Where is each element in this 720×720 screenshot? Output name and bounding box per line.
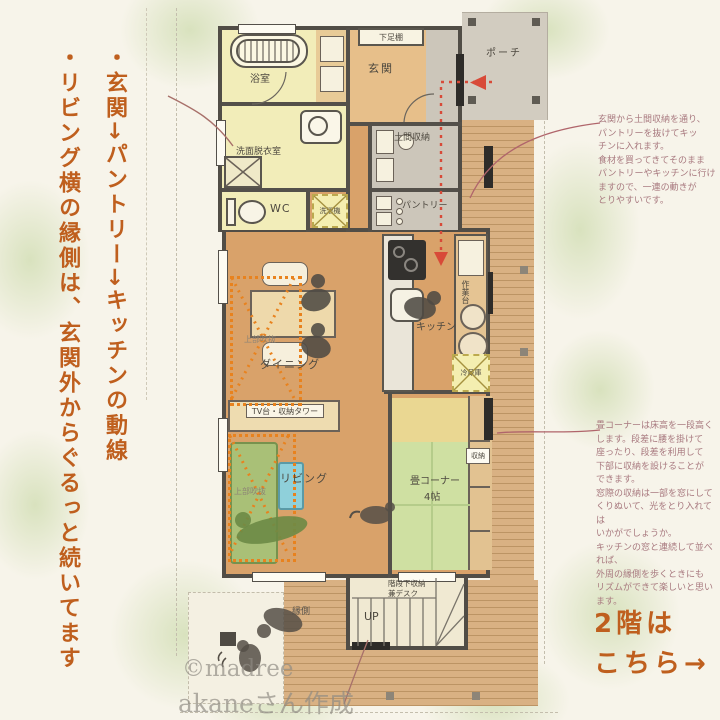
window (238, 24, 296, 34)
author-credit: akaneさん作成 (178, 684, 354, 720)
porch-post (468, 96, 476, 104)
void-living-label: 上部吹抜 (234, 486, 266, 497)
closet (224, 156, 262, 188)
toilet-bowl (238, 200, 266, 224)
wall (306, 192, 310, 232)
storage-label: 収納 (471, 451, 485, 461)
tatami-size-label: 4帖 (424, 488, 440, 503)
stairs-desk-label: 階段下収納 兼デスク (388, 579, 426, 599)
wall (348, 122, 462, 126)
pantry-shelf (376, 196, 392, 210)
void-above-living (228, 434, 296, 562)
washing-machine: 洗濯機 (312, 194, 348, 228)
note-engawa: ・リビング横の縁側は、玄関外からぐるっと続いてます (51, 46, 83, 706)
boundary-dashed-line (146, 8, 147, 400)
storage-divider (468, 530, 490, 532)
void-dining-label: 上部吹抜 (244, 334, 276, 345)
washbasin-bowl (308, 116, 328, 136)
wall (368, 126, 372, 232)
annotation-entrance-flow: 玄関から土間収納を通り、 パントリーを抜けてキッ チンに入れます。 食材を買って… (598, 114, 716, 209)
shoe-shelf: 下足棚 (358, 28, 424, 46)
porch-post (468, 18, 476, 26)
annotation-tatami: 畳コーナーは床高を一段高く します。段差に腰を掛けて 座ったり、段差を利用して … (596, 420, 720, 609)
toilet-tank (226, 198, 236, 226)
doma-shelf (376, 130, 394, 154)
shoe-shelf-label: 下足棚 (379, 32, 403, 43)
tatami-label: 畳コーナー (410, 472, 460, 487)
left-notes: ・玄関→パントリー→キッチンの動線 ・リビング横の縁側は、玄関外からぐるっと続い… (36, 46, 130, 706)
brand-credit: ©madree (182, 656, 293, 682)
note-flow: ・玄関→パントリー→キッチンの動線 (98, 46, 130, 706)
storage-divider (468, 486, 490, 488)
engawa-deck-east (490, 232, 534, 580)
deck-door (252, 572, 326, 582)
laundry-shelf (320, 36, 344, 62)
wc-label: WC (270, 202, 291, 215)
boundary-dashed-line (544, 116, 545, 664)
fridge-label: 冷蔵庫 (461, 368, 482, 378)
step-stone (220, 632, 236, 646)
deck-post (520, 348, 528, 356)
engawa-label: 縁側 (292, 604, 310, 617)
stove-burner (404, 258, 418, 272)
pantry-item (396, 218, 403, 225)
second-floor-note: 2階は こちら→ (594, 604, 710, 685)
pantry-label: パントリー (402, 198, 447, 211)
counter-shelf (458, 240, 484, 276)
tv-cabinet-labelbox: TV台・収納タワー (246, 404, 324, 418)
stool (460, 304, 486, 330)
second-floor-line1: 2階は (594, 604, 710, 644)
entrance-door (456, 54, 464, 106)
washroom-label: 洗面脱衣室 (236, 144, 281, 157)
doma-shelf (376, 158, 394, 182)
wall (372, 188, 458, 192)
window (352, 642, 390, 650)
wall (388, 394, 392, 578)
porch-post (532, 96, 540, 104)
floor-plan-page: 下足棚 冷蔵庫 洗濯機 TV台・収納タワー 収納 (0, 0, 720, 720)
tatami-seam (431, 442, 433, 570)
deck-post (386, 692, 394, 700)
window (484, 398, 493, 440)
porch-post (532, 18, 540, 26)
doma-storage-label: 土間収納 (394, 130, 430, 143)
stove-burner (393, 246, 405, 258)
deck-post (520, 266, 528, 274)
living-label: リビング (280, 470, 328, 486)
porch-label: ポーチ (486, 44, 522, 59)
wall (222, 102, 348, 106)
boundary-dashed-line (176, 8, 177, 656)
tv-stand-label: TV台・収納タワー (252, 406, 318, 417)
tatami-seam (392, 504, 470, 506)
fridge: 冷蔵庫 (452, 354, 490, 392)
kitchen-sink (390, 288, 424, 322)
window (484, 146, 493, 188)
bath-label: 浴室 (250, 70, 270, 85)
engawa-deck-east-upper (462, 120, 534, 232)
laundry-shelf (320, 66, 344, 92)
wall (222, 188, 348, 192)
window (218, 250, 228, 304)
pantry-shelf (376, 212, 392, 226)
work-counter-label: 作業台 (460, 280, 471, 304)
kitchen-label: キッチン (416, 318, 456, 333)
washer-label: 洗濯機 (320, 206, 341, 216)
dining-label: ダイニング (260, 356, 320, 372)
storage-labelbox: 収納 (466, 448, 490, 464)
tatami-step (392, 398, 470, 442)
entrance-label: 玄関 (368, 60, 394, 76)
window (218, 418, 228, 472)
bathtub-inner (236, 39, 300, 63)
stairs-up-label: UP (364, 610, 379, 623)
storage-divider (468, 440, 490, 442)
second-floor-line2: こちら→ (594, 644, 710, 684)
entrance-tataki (426, 30, 458, 124)
deck-post (472, 692, 480, 700)
